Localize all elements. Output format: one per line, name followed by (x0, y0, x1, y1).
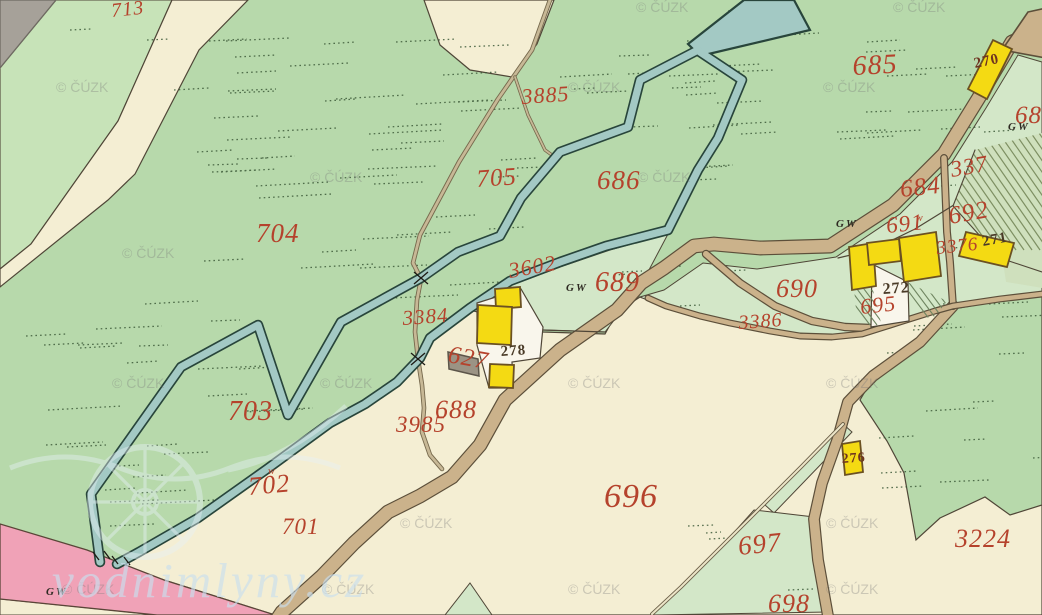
svg-text:703: 703 (228, 396, 273, 427)
svg-text:GW: GW (836, 218, 858, 230)
svg-text:© ČÚZK: © ČÚZK (826, 581, 879, 597)
svg-text:697: 697 (736, 527, 783, 561)
svg-text:686: 686 (597, 165, 641, 195)
svg-text:© ČÚZK: © ČÚZK (636, 0, 689, 15)
svg-text:684: 684 (899, 172, 942, 203)
svg-text:© ČÚZK: © ČÚZK (400, 515, 453, 531)
svg-text:698: 698 (768, 589, 810, 615)
svg-text:3376: 3376 (934, 234, 979, 259)
svg-text:© ČÚZK: © ČÚZK (823, 79, 876, 95)
svg-text:w: w (916, 213, 924, 224)
svg-text:272: 272 (882, 279, 910, 298)
svg-text:© ČÚZK: © ČÚZK (112, 375, 165, 391)
svg-text:© ČÚZK: © ČÚZK (893, 0, 946, 15)
svg-text:705: 705 (476, 163, 518, 193)
svg-text:689: 689 (595, 267, 640, 298)
svg-text:© ČÚZK: © ČÚZK (638, 169, 691, 185)
svg-text:© ČÚZK: © ČÚZK (568, 581, 621, 597)
svg-text:© ČÚZK: © ČÚZK (568, 375, 621, 391)
svg-text:© ČÚZK: © ČÚZK (122, 245, 175, 261)
svg-text:© ČÚZK: © ČÚZK (826, 375, 879, 391)
svg-text:© ČÚZK: © ČÚZK (320, 375, 373, 391)
svg-text:vodnimlyny.cz: vodnimlyny.cz (52, 553, 367, 608)
svg-text:713: 713 (110, 0, 145, 22)
svg-text:3224: 3224 (954, 524, 1011, 553)
svg-text:704: 704 (256, 218, 300, 248)
svg-text:© ČÚZK: © ČÚZK (568, 79, 621, 95)
svg-text:3885: 3885 (520, 81, 571, 109)
svg-text:3384: 3384 (401, 303, 450, 330)
svg-text:701: 701 (282, 514, 320, 539)
svg-text:696: 696 (604, 478, 658, 515)
svg-text:© ČÚZK: © ČÚZK (310, 169, 363, 185)
svg-text:3985: 3985 (395, 412, 446, 437)
svg-text:276: 276 (841, 450, 866, 467)
svg-text:© ČÚZK: © ČÚZK (56, 79, 109, 95)
svg-text:w: w (268, 466, 276, 477)
svg-text:GW: GW (566, 282, 588, 294)
svg-text:690: 690 (776, 274, 818, 303)
svg-text:© ČÚZK: © ČÚZK (826, 515, 879, 531)
svg-text:3386: 3386 (737, 309, 783, 334)
svg-text:685: 685 (852, 49, 899, 82)
svg-text:278: 278 (500, 342, 527, 360)
svg-text:GW: GW (1008, 121, 1030, 133)
